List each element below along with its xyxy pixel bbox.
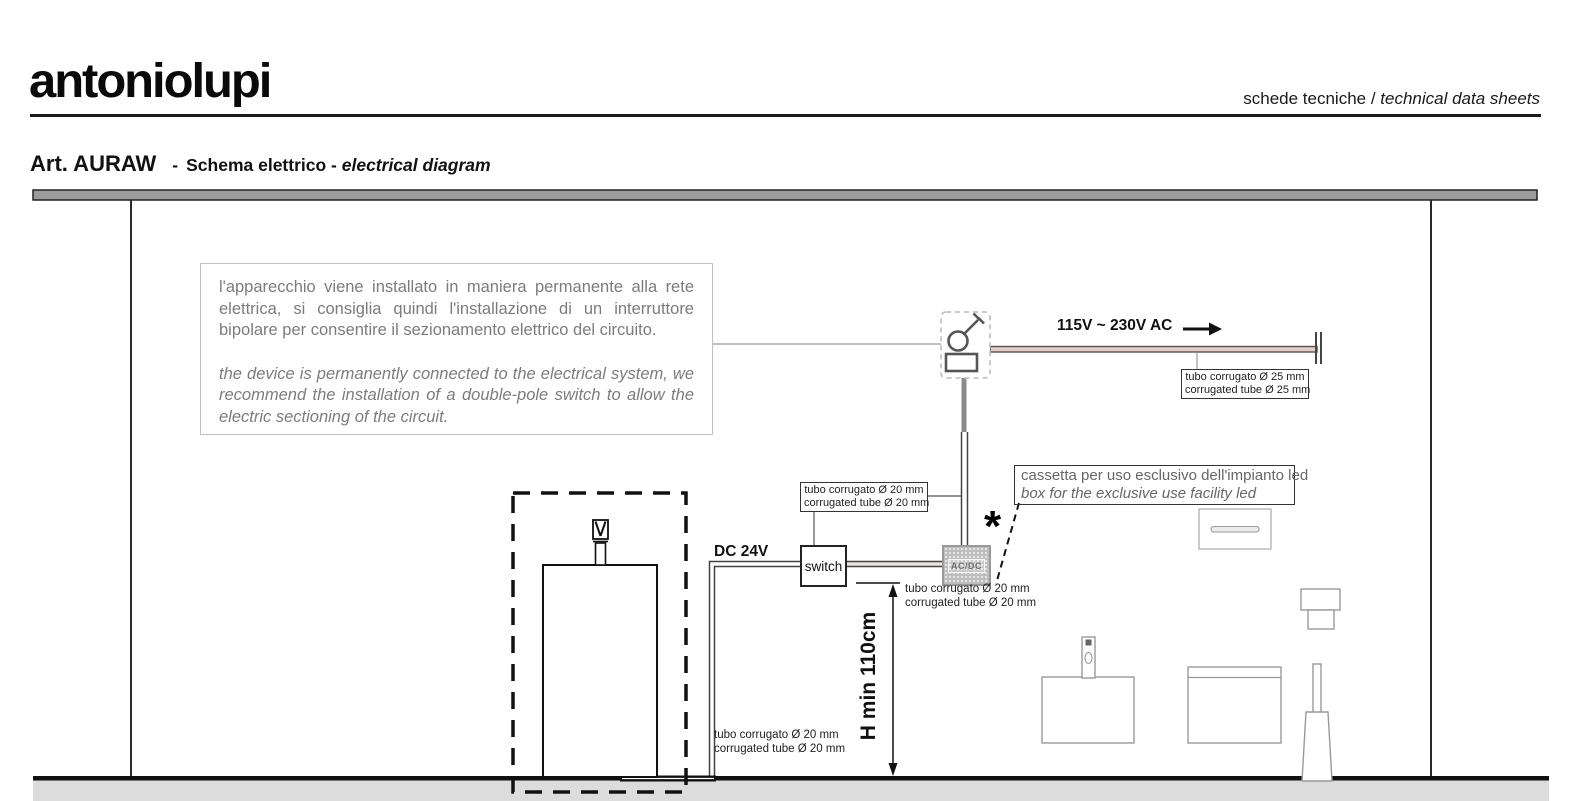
note-italian: l'apparecchio viene installato in manier… <box>219 277 694 342</box>
tube20-floor-label: tubo corrugato Ø 20 mm corrugated tube Ø… <box>714 729 845 756</box>
accessory-box-icon <box>1188 667 1281 743</box>
ceiling-bar <box>33 190 1537 200</box>
tube25-line2: corrugated tube Ø 25 mm <box>1185 384 1305 397</box>
led-box-line1: cassetta per uso esclusivo dell'impianto… <box>1021 467 1288 485</box>
note-english: the device is permanently connected to t… <box>219 364 694 429</box>
page-title: Art. AURAW-Schema elettrico - electrical… <box>30 151 491 177</box>
tube20-floor-line1: tubo corrugato Ø 20 mm <box>714 729 845 743</box>
sheet-subtitle: schede tecniche / technical data sheets <box>1243 89 1540 109</box>
tube25-label: tubo corrugato Ø 25 mm corrugated tube Ø… <box>1181 369 1309 399</box>
title-italian: Schema elettrico - <box>186 155 342 175</box>
tube25-line1: tubo corrugato Ø 25 mm <box>1185 371 1305 384</box>
ac-dc-converter-label: AC/DC <box>948 559 985 573</box>
installation-note-box: l'apparecchio viene installato in manier… <box>200 263 713 435</box>
switch-drop-wire <box>962 378 968 545</box>
height-dimension-label: H min 110cm <box>857 581 881 771</box>
led-box-label: cassetta per uso esclusivo dell'impianto… <box>1014 465 1295 505</box>
soap-dispenser-icon <box>1042 637 1134 743</box>
washbasin-column <box>543 565 657 777</box>
technical-data-sheet-page: antoniolupi schede tecniche / technical … <box>0 0 1583 801</box>
article-code: Art. AURAW <box>30 151 156 176</box>
led-box-line2: box for the exclusive use facility led <box>1021 485 1288 503</box>
tube20-wall-line2: corrugated tube Ø 20 mm <box>804 497 924 510</box>
title-english: electrical diagram <box>342 155 491 175</box>
subtitle-italian: schede tecniche / <box>1243 89 1380 108</box>
title-separator: - <box>172 155 178 175</box>
brand-logo: antoniolupi <box>29 54 270 109</box>
tube20-acdc-label: tubo corrugato Ø 20 mm corrugated tube Ø… <box>905 583 1036 610</box>
tube20-floor-line2: corrugated tube Ø 20 mm <box>714 743 845 757</box>
arrow-right-icon <box>1183 323 1222 336</box>
asterisk-marker: * <box>984 505 1001 549</box>
toilet-brush-icon <box>1302 664 1332 781</box>
tube20-acdc-line2: corrugated tube Ø 20 mm <box>905 597 1036 611</box>
tube20-acdc-line1: tubo corrugato Ø 20 mm <box>905 583 1036 597</box>
subtitle-english: technical data sheets <box>1380 89 1540 108</box>
header-rule <box>30 114 1541 117</box>
wall-dispenser-icon <box>1301 589 1340 629</box>
installation-dashed-outline <box>513 493 686 792</box>
dc-voltage-label: DC 24V <box>714 543 768 561</box>
ac-voltage-label: 115V ~ 230V AC <box>1057 317 1172 335</box>
led-profile-icon <box>1199 509 1271 549</box>
disconnect-switch-icon <box>941 312 990 378</box>
floor-bar <box>33 776 1549 801</box>
switch-to-converter-wire <box>847 562 942 567</box>
switch-box-label: switch <box>805 559 843 574</box>
tube20-wall-label: tubo corrugato Ø 20 mm corrugated tube Ø… <box>800 482 928 512</box>
switch-box: switch <box>800 545 847 587</box>
faucet-icon <box>593 520 608 565</box>
ac-mains-wire <box>990 332 1321 364</box>
tube20-wall-line1: tubo corrugato Ø 20 mm <box>804 484 924 497</box>
ac-dc-converter: AC/DC <box>942 545 991 586</box>
